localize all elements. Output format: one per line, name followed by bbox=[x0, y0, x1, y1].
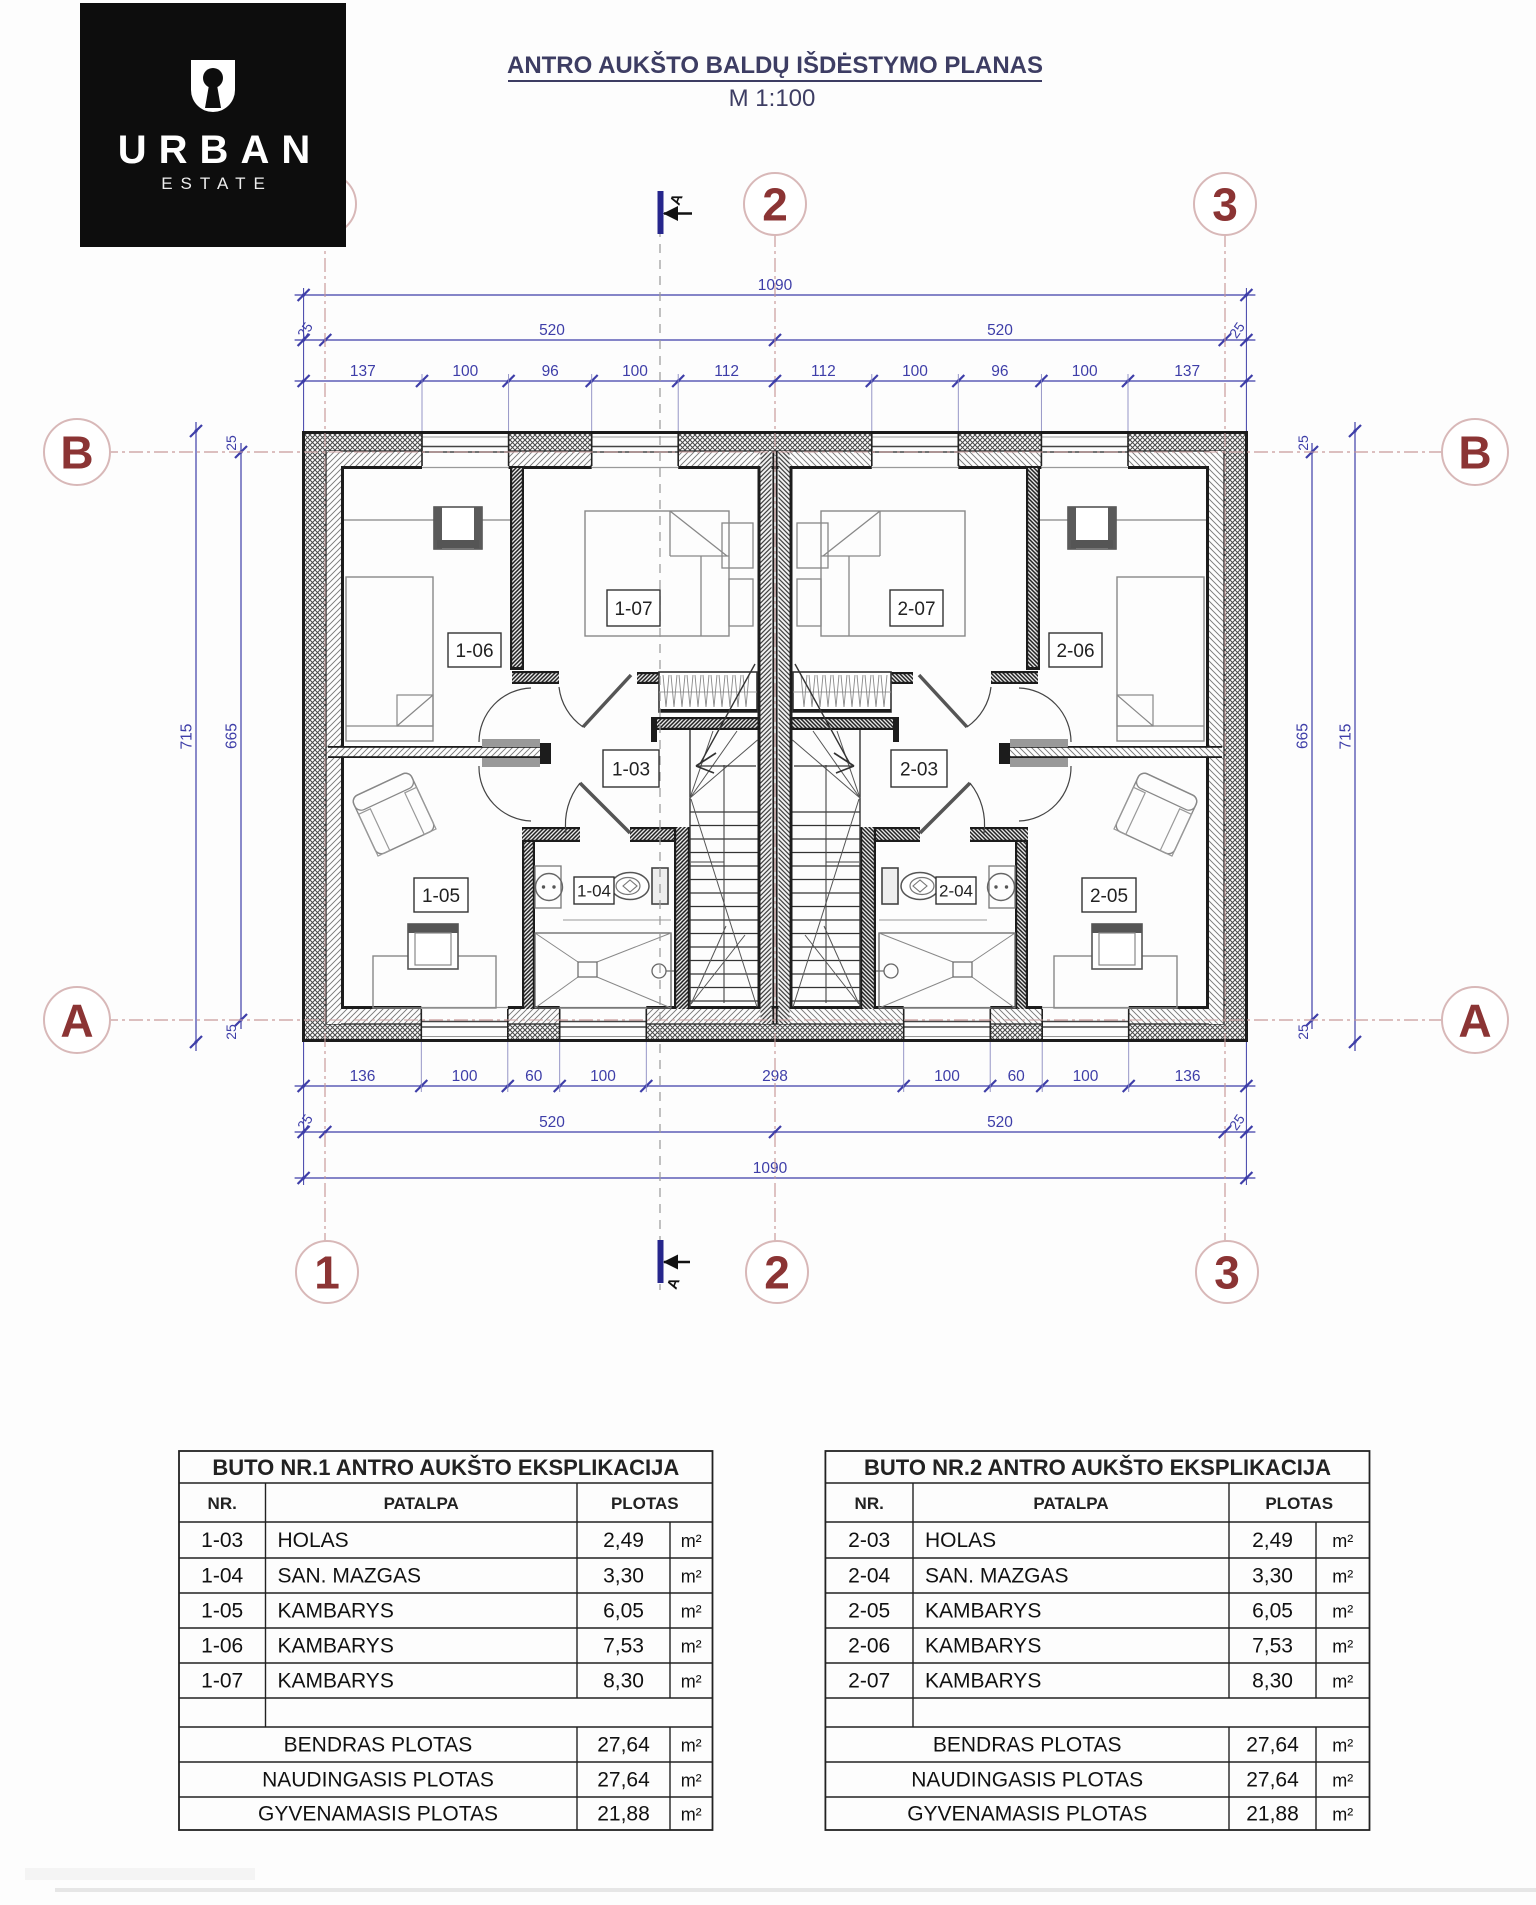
svg-text:136: 136 bbox=[350, 1068, 376, 1085]
svg-text:27,64: 27,64 bbox=[597, 1769, 650, 1792]
svg-text:25: 25 bbox=[223, 435, 239, 451]
svg-text:B: B bbox=[60, 427, 93, 479]
svg-text:1-07: 1-07 bbox=[614, 599, 652, 620]
svg-text:1-05: 1-05 bbox=[422, 886, 460, 907]
svg-text:520: 520 bbox=[539, 322, 565, 339]
svg-text:PATALPA: PATALPA bbox=[1033, 1494, 1108, 1513]
svg-text:520: 520 bbox=[539, 1114, 565, 1131]
svg-text:NR.: NR. bbox=[855, 1494, 884, 1513]
svg-text:100: 100 bbox=[1072, 363, 1098, 380]
svg-text:1-06: 1-06 bbox=[201, 1635, 243, 1658]
svg-text:136: 136 bbox=[1175, 1068, 1201, 1085]
svg-text:GYVENAMASIS PLOTAS: GYVENAMASIS PLOTAS bbox=[258, 1803, 498, 1826]
svg-text:PLOTAS: PLOTAS bbox=[611, 1494, 679, 1513]
svg-text:21,88: 21,88 bbox=[597, 1803, 650, 1826]
svg-text:25: 25 bbox=[223, 1024, 239, 1040]
svg-text:1-04: 1-04 bbox=[201, 1565, 243, 1588]
svg-text:8,30: 8,30 bbox=[1252, 1670, 1293, 1693]
svg-text:2-07: 2-07 bbox=[848, 1670, 890, 1693]
svg-text:100: 100 bbox=[452, 363, 478, 380]
svg-text:m²: m² bbox=[681, 1567, 702, 1587]
svg-text:27,64: 27,64 bbox=[1246, 1734, 1299, 1757]
svg-text:M 1:100: M 1:100 bbox=[729, 85, 816, 112]
svg-text:100: 100 bbox=[452, 1068, 478, 1085]
svg-text:m²: m² bbox=[681, 1771, 702, 1791]
svg-text:137: 137 bbox=[350, 363, 376, 380]
svg-text:665: 665 bbox=[1295, 723, 1312, 749]
svg-text:2: 2 bbox=[762, 179, 788, 231]
svg-text:m²: m² bbox=[1332, 1637, 1353, 1657]
svg-text:ANTRO AUKŠTO BALDŲ IŠDĖSTYMO P: ANTRO AUKŠTO BALDŲ IŠDĖSTYMO PLANAS bbox=[507, 51, 1043, 79]
svg-text:100: 100 bbox=[590, 1068, 616, 1085]
svg-text:KAMBARYS: KAMBARYS bbox=[278, 1600, 394, 1623]
svg-text:60: 60 bbox=[525, 1068, 543, 1085]
svg-text:KAMBARYS: KAMBARYS bbox=[925, 1670, 1041, 1693]
svg-text:KAMBARYS: KAMBARYS bbox=[925, 1600, 1041, 1623]
svg-text:1090: 1090 bbox=[753, 1160, 788, 1177]
svg-text:112: 112 bbox=[811, 363, 836, 380]
svg-text:100: 100 bbox=[1073, 1068, 1099, 1085]
svg-text:GYVENAMASIS PLOTAS: GYVENAMASIS PLOTAS bbox=[907, 1803, 1147, 1826]
svg-text:3: 3 bbox=[1212, 179, 1238, 231]
svg-text:6,05: 6,05 bbox=[1252, 1600, 1293, 1623]
svg-text:3: 3 bbox=[1214, 1247, 1240, 1299]
svg-text:m²: m² bbox=[1332, 1805, 1353, 1825]
svg-text:715: 715 bbox=[179, 724, 196, 750]
svg-text:BENDRAS PLOTAS: BENDRAS PLOTAS bbox=[284, 1734, 473, 1757]
svg-text:m²: m² bbox=[681, 1637, 702, 1657]
svg-text:KAMBARYS: KAMBARYS bbox=[278, 1670, 394, 1693]
svg-text:7,53: 7,53 bbox=[603, 1635, 644, 1658]
svg-text:27,64: 27,64 bbox=[1246, 1769, 1299, 1792]
svg-text:PLOTAS: PLOTAS bbox=[1265, 1494, 1333, 1513]
svg-text:m²: m² bbox=[1332, 1567, 1353, 1587]
svg-text:BUTO NR.1 ANTRO AUKŠTO EKSPLIK: BUTO NR.1 ANTRO AUKŠTO EKSPLIKACIJA bbox=[212, 1455, 679, 1480]
svg-text:m²: m² bbox=[1332, 1771, 1353, 1791]
svg-text:1-03: 1-03 bbox=[201, 1529, 243, 1552]
svg-text:NAUDINGASIS PLOTAS: NAUDINGASIS PLOTAS bbox=[911, 1769, 1143, 1792]
svg-text:2-05: 2-05 bbox=[848, 1600, 890, 1623]
svg-text:A: A bbox=[60, 995, 93, 1047]
svg-text:6,05: 6,05 bbox=[603, 1600, 644, 1623]
svg-text:NR.: NR. bbox=[208, 1494, 237, 1513]
svg-text:2,49: 2,49 bbox=[1252, 1529, 1293, 1552]
svg-text:m²: m² bbox=[681, 1672, 702, 1692]
svg-text:1-05: 1-05 bbox=[201, 1600, 243, 1623]
svg-text:URBAN: URBAN bbox=[118, 128, 322, 172]
svg-text:1-07: 1-07 bbox=[201, 1670, 243, 1693]
svg-text:A: A bbox=[1458, 995, 1491, 1047]
svg-text:BUTO NR.2 ANTRO AUKŠTO EKSPLIK: BUTO NR.2 ANTRO AUKŠTO EKSPLIKACIJA bbox=[864, 1455, 1331, 1480]
svg-text:HOLAS: HOLAS bbox=[278, 1529, 349, 1552]
svg-text:2-03: 2-03 bbox=[848, 1529, 890, 1552]
svg-text:B: B bbox=[1458, 427, 1491, 479]
svg-text:SAN. MAZGAS: SAN. MAZGAS bbox=[278, 1565, 422, 1588]
svg-text:1-06: 1-06 bbox=[455, 641, 493, 662]
svg-text:3,30: 3,30 bbox=[603, 1565, 644, 1588]
svg-text:1-03: 1-03 bbox=[612, 759, 650, 780]
svg-text:2-05: 2-05 bbox=[1090, 886, 1128, 907]
svg-text:SAN. MAZGAS: SAN. MAZGAS bbox=[925, 1565, 1069, 1588]
svg-text:100: 100 bbox=[902, 363, 928, 380]
svg-text:2-04: 2-04 bbox=[939, 882, 973, 901]
svg-text:2-03: 2-03 bbox=[900, 759, 938, 780]
svg-text:8,30: 8,30 bbox=[603, 1670, 644, 1693]
svg-text:25: 25 bbox=[1295, 435, 1311, 451]
svg-text:m²: m² bbox=[681, 1602, 702, 1622]
svg-text:520: 520 bbox=[987, 322, 1013, 339]
svg-text:21,88: 21,88 bbox=[1246, 1803, 1299, 1826]
svg-text:m²: m² bbox=[1332, 1736, 1353, 1756]
svg-text:715: 715 bbox=[1338, 724, 1355, 750]
svg-text:2-06: 2-06 bbox=[848, 1635, 890, 1658]
svg-text:27,64: 27,64 bbox=[597, 1734, 650, 1757]
svg-text:96: 96 bbox=[991, 363, 1008, 380]
svg-text:2-06: 2-06 bbox=[1056, 641, 1094, 662]
svg-text:PATALPA: PATALPA bbox=[384, 1494, 459, 1513]
svg-text:60: 60 bbox=[1008, 1068, 1026, 1085]
svg-text:2: 2 bbox=[764, 1247, 790, 1299]
svg-text:1: 1 bbox=[314, 1247, 340, 1299]
svg-text:KAMBARYS: KAMBARYS bbox=[278, 1635, 394, 1658]
svg-text:BENDRAS PLOTAS: BENDRAS PLOTAS bbox=[933, 1734, 1122, 1757]
svg-text:1-04: 1-04 bbox=[577, 882, 611, 901]
svg-text:NAUDINGASIS PLOTAS: NAUDINGASIS PLOTAS bbox=[262, 1769, 494, 1792]
svg-text:m²: m² bbox=[1332, 1531, 1353, 1551]
svg-text:112: 112 bbox=[714, 363, 739, 380]
svg-text:520: 520 bbox=[987, 1114, 1013, 1131]
svg-text:96: 96 bbox=[542, 363, 559, 380]
svg-text:KAMBARYS: KAMBARYS bbox=[925, 1635, 1041, 1658]
svg-text:100: 100 bbox=[934, 1068, 960, 1085]
svg-text:3,30: 3,30 bbox=[1252, 1565, 1293, 1588]
svg-text:665: 665 bbox=[224, 723, 241, 749]
svg-text:ESTATE: ESTATE bbox=[161, 174, 273, 193]
svg-text:25: 25 bbox=[1295, 1024, 1311, 1040]
svg-text:100: 100 bbox=[622, 363, 648, 380]
svg-text:m²: m² bbox=[1332, 1672, 1353, 1692]
svg-text:2-04: 2-04 bbox=[848, 1565, 890, 1588]
svg-text:2-07: 2-07 bbox=[897, 599, 935, 620]
svg-text:7,53: 7,53 bbox=[1252, 1635, 1293, 1658]
svg-text:137: 137 bbox=[1174, 363, 1200, 380]
svg-text:2,49: 2,49 bbox=[603, 1529, 644, 1552]
svg-text:HOLAS: HOLAS bbox=[925, 1529, 996, 1552]
svg-text:m²: m² bbox=[681, 1531, 702, 1551]
svg-text:m²: m² bbox=[681, 1736, 702, 1756]
svg-text:m²: m² bbox=[1332, 1602, 1353, 1622]
svg-text:m²: m² bbox=[681, 1805, 702, 1825]
